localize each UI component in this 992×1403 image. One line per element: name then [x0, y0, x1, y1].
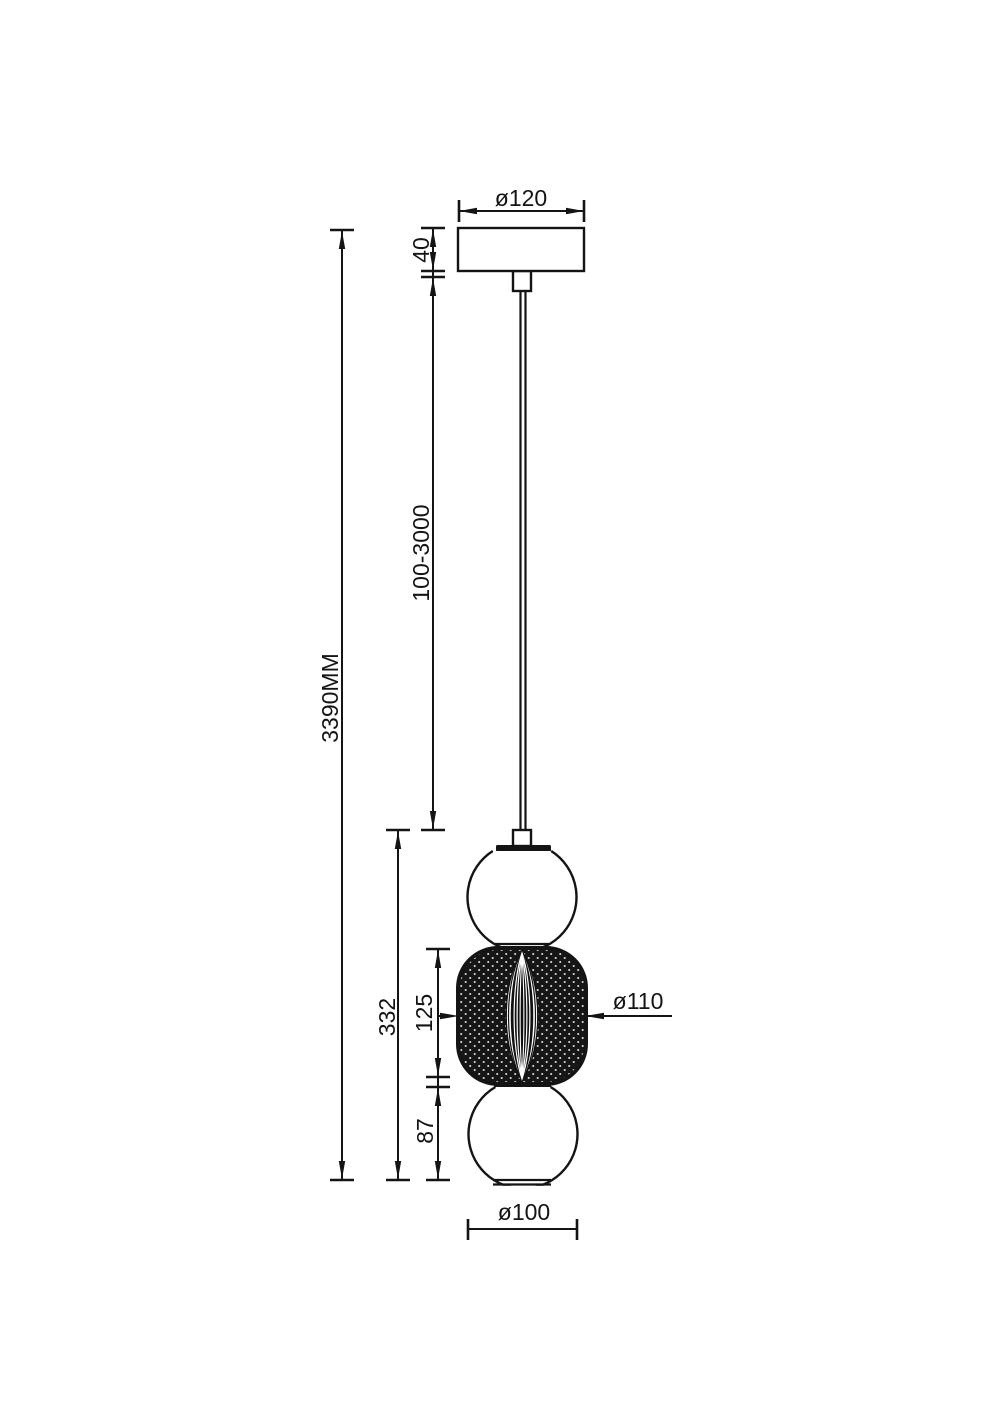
body-height-label: 332 — [374, 998, 400, 1036]
bottom-sphere — [468, 1087, 577, 1188]
dim-sphere-diameter: ø100 — [468, 1199, 577, 1240]
ceiling-canopy — [458, 228, 584, 271]
bottom-sphere-height-label: 87 — [412, 1118, 438, 1144]
technical-drawing-page: ø120 40 100-3000 3390MM 332 — [0, 0, 992, 1403]
canopy-diameter-label: ø120 — [495, 185, 547, 211]
dim-total-height: 3390MM — [317, 230, 354, 1180]
dim-canopy-diameter: ø120 — [459, 185, 584, 222]
canopy-height-label: 40 — [408, 237, 434, 263]
total-height-label: 3390MM — [317, 653, 343, 742]
sphere-diameter-label: ø100 — [498, 1199, 550, 1225]
lamp-object — [458, 228, 586, 1194]
canopy-connector — [513, 271, 531, 291]
diffuser-height-label: 125 — [411, 994, 437, 1032]
top-sphere-cap — [496, 845, 551, 852]
dim-canopy-height: 40 100-3000 — [408, 228, 445, 830]
body-connector — [513, 830, 531, 846]
dim-body-height: 332 — [374, 830, 410, 1180]
diffuser-diameter-label: ø110 — [613, 988, 664, 1014]
pendant-lamp-drawing: ø120 40 100-3000 3390MM 332 — [0, 0, 992, 1403]
bottom-sphere-mask — [488, 1186, 558, 1194]
dim-diffuser-and-sphere-height: 125 87 — [411, 949, 450, 1180]
suspension-length-label: 100-3000 — [408, 504, 434, 601]
top-sphere — [467, 851, 576, 952]
